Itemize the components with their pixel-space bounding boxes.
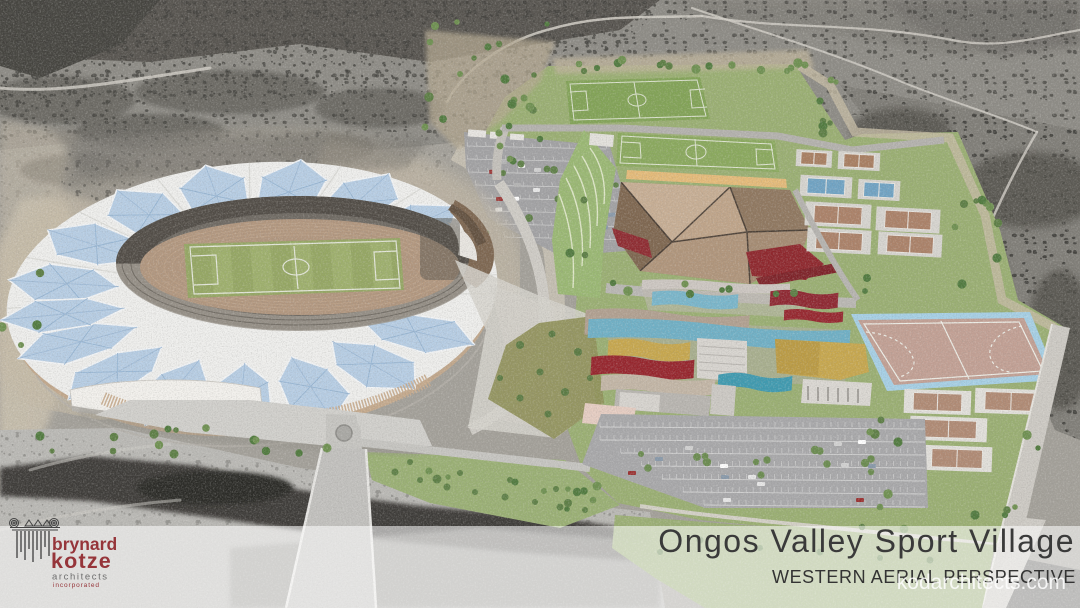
svg-text:kotze: kotze [51,549,112,573]
svg-text:Ongos Valley Sport Village: Ongos Valley Sport Village [658,523,1075,559]
svg-text:architects: architects [52,572,109,583]
svg-text:incorporated: incorporated [53,582,100,589]
svg-text:kodarchitects.com: kodarchitects.com [897,571,1066,594]
